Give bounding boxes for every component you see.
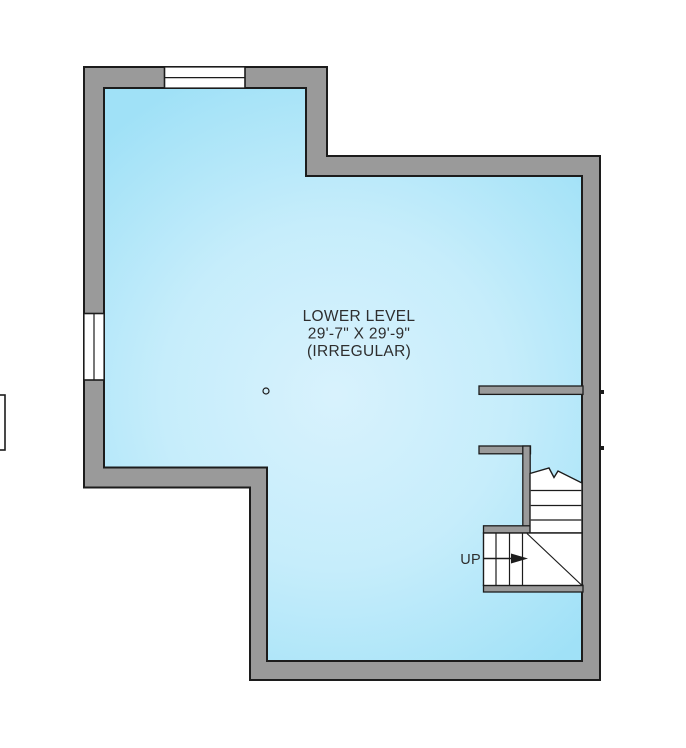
window-top (165, 67, 246, 88)
room-label: LOWER LEVEL (303, 308, 416, 325)
floor-plan: LOWER LEVEL 29'-7" X 29'-9" (IRREGULAR) … (0, 0, 686, 748)
wall-tick-lower (600, 446, 604, 450)
room-note: (IRREGULAR) (307, 343, 411, 360)
edge-structure-fragment (0, 395, 5, 450)
wall-stub-upper (479, 386, 583, 394)
stairs-up-label: UP (460, 552, 481, 568)
wall-tick-upper (600, 390, 604, 394)
floor-plan-canvas: LOWER LEVEL 29'-7" X 29'-9" (IRREGULAR) … (0, 0, 686, 748)
window-left (84, 314, 104, 381)
room-dimensions: 29'-7" X 29'-9" (308, 326, 410, 343)
